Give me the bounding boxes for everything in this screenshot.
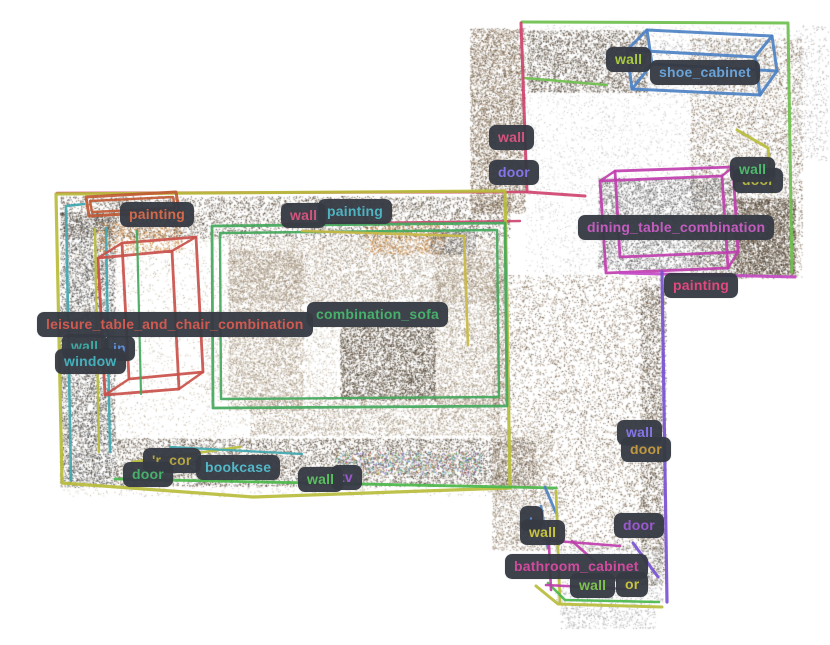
label-door-bath[interactable]: door — [614, 513, 664, 538]
label-painting-left[interactable]: painting — [120, 202, 194, 227]
label-wall-tv[interactable]: wall — [298, 467, 343, 492]
label-bookcase[interactable]: bookcase — [196, 455, 280, 480]
label-wall-corridor[interactable]: wall — [617, 420, 662, 445]
label-wall-entry-top[interactable]: wall — [606, 47, 651, 72]
label-dining-combo[interactable]: dining_table_combination — [578, 215, 774, 240]
label-wall-bath-left[interactable]: wall — [520, 520, 565, 545]
label-window[interactable]: window — [55, 349, 126, 374]
label-painting-teal[interactable]: painting — [318, 199, 392, 224]
label-combination-sofa[interactable]: combination_sofa — [307, 302, 448, 327]
label-wall-entry-left[interactable]: wall — [489, 125, 534, 150]
label-door-living[interactable]: door — [123, 462, 173, 487]
pointcloud-annotation-viewer: inwallwindowleisure_table_and_chair_comb… — [0, 0, 830, 645]
label-shoe-cabinet[interactable]: shoe_cabinet — [650, 60, 760, 85]
label-painting-dining[interactable]: painting — [664, 273, 738, 298]
labels-layer: inwallwindowleisure_table_and_chair_comb… — [0, 0, 830, 645]
label-wall-entry-right[interactable]: wall — [730, 157, 775, 182]
label-bathroom-cabinet[interactable]: bathroom_cabinet — [505, 554, 648, 579]
label-door-entry-left[interactable]: door — [489, 160, 539, 185]
label-leisure-combo[interactable]: leisure_table_and_chair_combination — [37, 312, 313, 337]
